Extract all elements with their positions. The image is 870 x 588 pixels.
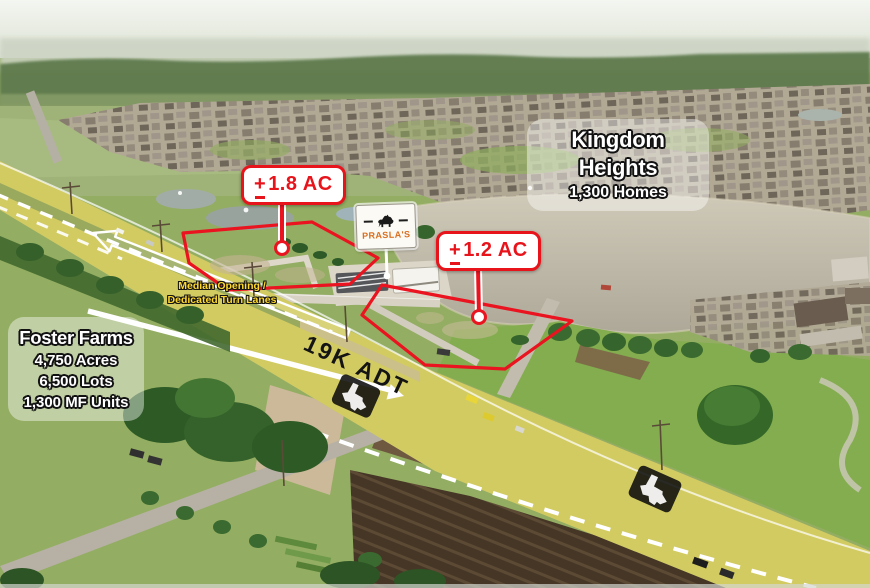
median-note-line2: Dedicated Turn Lanes bbox=[152, 293, 292, 307]
pond-fountain bbox=[244, 208, 249, 213]
parcel-tag-1-8ac: +1.8 AC bbox=[241, 165, 346, 205]
foster-farms-label: Foster Farms 4,750 Acres 6,500 Lots 1,30… bbox=[8, 317, 144, 421]
prasla-sign-pole bbox=[384, 246, 391, 279]
aerial-site-flyer: Kingdom Heights 1,300 Homes Foster Farms… bbox=[0, 0, 870, 588]
sign-rule-left bbox=[364, 220, 373, 222]
kingdom-heights-label: Kingdom Heights 1,300 Homes bbox=[527, 119, 709, 211]
development-lots: 6,500 Lots bbox=[10, 373, 142, 392]
pond-fountain bbox=[178, 191, 182, 195]
parcel-acreage: 1.8 AC bbox=[268, 173, 333, 195]
neighborhood-homes-count: 1,300 Homes bbox=[531, 183, 705, 203]
parcel-acreage: 1.2 AC bbox=[463, 239, 528, 261]
development-mf-units: 1,300 MF Units bbox=[10, 394, 142, 413]
sign-rule-right bbox=[399, 219, 408, 221]
plus-minus-sign: + bbox=[449, 239, 461, 262]
photo-bottom-edge bbox=[0, 584, 870, 588]
median-note-line1: Median Opening / bbox=[152, 279, 292, 293]
development-acres: 4,750 Acres bbox=[10, 352, 142, 371]
bear-silhouette-icon bbox=[375, 213, 398, 229]
parcel-tag-1-2ac: +1.2 AC bbox=[436, 231, 541, 271]
median-opening-note: Median Opening / Dedicated Turn Lanes bbox=[152, 279, 292, 307]
plus-minus-sign: + bbox=[254, 173, 266, 196]
garden-rows bbox=[275, 536, 317, 551]
aerial-photo-background bbox=[0, 0, 870, 588]
development-name: Foster Farms bbox=[10, 326, 142, 349]
praslas-sign: PRASLA'S bbox=[355, 203, 417, 250]
neighborhood-name: Kingdom Heights bbox=[531, 126, 705, 181]
praslas-mascot-row bbox=[364, 213, 408, 230]
praslas-brand-text: PRASLA'S bbox=[362, 229, 411, 241]
